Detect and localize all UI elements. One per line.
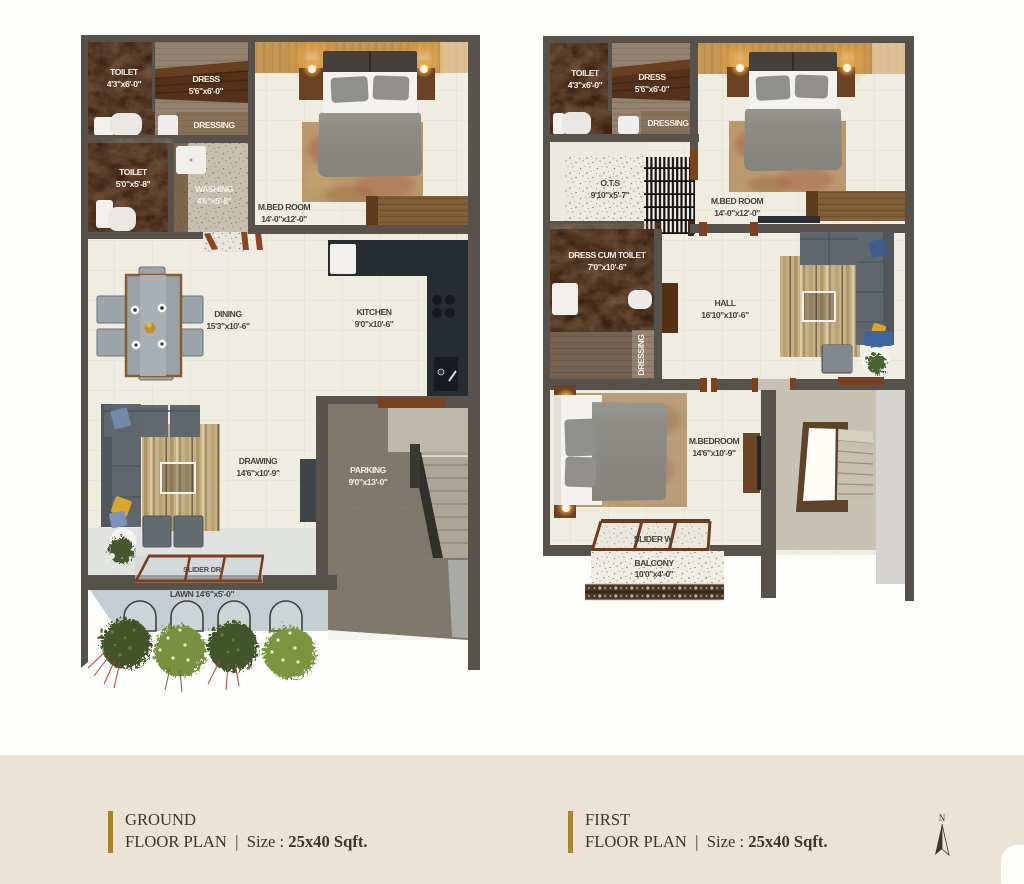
svg-text:16'10"x10'-6": 16'10"x10'-6" xyxy=(701,310,749,320)
svg-text:4'3"x6'-0": 4'3"x6'-0" xyxy=(568,80,603,90)
svg-text:5'0"x5'-8": 5'0"x5'-8" xyxy=(116,179,151,189)
svg-text:15'3"x10'-6": 15'3"x10'-6" xyxy=(206,321,250,331)
svg-text:5'6"x6'-0": 5'6"x6'-0" xyxy=(189,86,224,96)
svg-text:DRESS: DRESS xyxy=(192,74,220,84)
svg-text:DRAWING: DRAWING xyxy=(239,456,278,466)
svg-text:14'6"x10'-9": 14'6"x10'-9" xyxy=(236,468,280,478)
svg-text:DRESS CUM TOILET: DRESS CUM TOILET xyxy=(568,250,646,260)
svg-text:O.T.S: O.T.S xyxy=(600,178,620,188)
svg-text:7'0"x10'-6": 7'0"x10'-6" xyxy=(588,262,627,272)
svg-text:14'-0"x12'-0": 14'-0"x12'-0" xyxy=(261,214,307,224)
svg-text:M.BED ROOM: M.BED ROOM xyxy=(711,196,764,206)
svg-text:FIRST: FIRST xyxy=(585,810,630,829)
svg-text:TOILET: TOILET xyxy=(110,67,139,77)
svg-text:FLOOR PLAN | Size : 25x40 Sq: FLOOR PLAN | Size : 25x40 Sqft. xyxy=(125,832,368,851)
svg-text:DINING: DINING xyxy=(214,309,242,319)
svg-text:WASHING: WASHING xyxy=(195,184,234,194)
svg-text:TOILET: TOILET xyxy=(119,167,148,177)
svg-text:SLIDER W: SLIDER W xyxy=(634,534,674,544)
svg-text:M.BEDROOM: M.BEDROOM xyxy=(689,436,740,446)
svg-text:LAWN 14'6"x5'-0": LAWN 14'6"x5'-0" xyxy=(170,589,235,599)
svg-text:DRESSING: DRESSING xyxy=(647,118,689,128)
svg-text:TOILET: TOILET xyxy=(571,68,600,78)
svg-text:DRESS: DRESS xyxy=(638,72,666,82)
svg-text:M.BED ROOM: M.BED ROOM xyxy=(258,202,311,212)
svg-text:SLIDER DR: SLIDER DR xyxy=(183,565,222,574)
svg-text:DRESSING: DRESSING xyxy=(636,334,646,376)
svg-text:BALCONY: BALCONY xyxy=(634,558,674,568)
svg-text:N: N xyxy=(939,813,946,823)
svg-text:PARKING: PARKING xyxy=(350,465,387,475)
svg-text:FLOOR PLAN | Size : 25x40 Sq: FLOOR PLAN | Size : 25x40 Sqft. xyxy=(585,832,828,851)
svg-text:9'10"x5'-7": 9'10"x5'-7" xyxy=(591,190,630,200)
svg-text:14'6"x10'-9": 14'6"x10'-9" xyxy=(692,448,736,458)
svg-text:DRESSING: DRESSING xyxy=(193,120,235,130)
svg-text:14'-0"x12'-0": 14'-0"x12'-0" xyxy=(714,208,760,218)
svg-text:GROUND: GROUND xyxy=(125,810,196,829)
svg-text:4'3"x6'-0": 4'3"x6'-0" xyxy=(107,79,142,89)
svg-text:KITCHEN: KITCHEN xyxy=(356,307,391,317)
svg-text:9'0"x10'-6": 9'0"x10'-6" xyxy=(355,319,394,329)
svg-text:4'6"x5'-8": 4'6"x5'-8" xyxy=(197,196,232,206)
svg-text:HALL: HALL xyxy=(714,298,735,308)
svg-text:9'0"x13'-0": 9'0"x13'-0" xyxy=(349,477,388,487)
svg-text:10'0"x4'-0": 10'0"x4'-0" xyxy=(635,569,674,579)
svg-text:5'6"x6'-0": 5'6"x6'-0" xyxy=(635,84,670,94)
